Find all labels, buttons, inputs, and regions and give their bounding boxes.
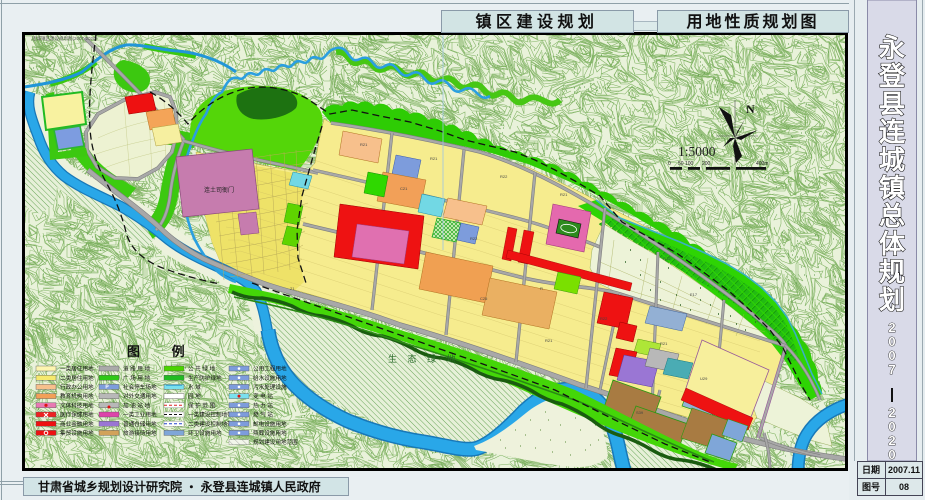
svg-text:体: 体 xyxy=(879,229,906,259)
svg-text:热 力 站: 热 力 站 xyxy=(253,401,273,409)
svg-text:0: 0 xyxy=(888,348,895,363)
svg-text:旅游接待用地: 旅游接待用地 xyxy=(123,429,157,437)
svg-text:县: 县 xyxy=(879,89,905,119)
svg-text:0: 0 xyxy=(888,419,895,434)
svg-text:道 路 用 地: 道 路 用 地 xyxy=(123,365,150,373)
svg-text:R22: R22 xyxy=(600,316,608,321)
svg-text:图号: 图号 xyxy=(862,482,880,492)
svg-text:R21: R21 xyxy=(430,156,438,161)
svg-text:变 电 站: 变 电 站 xyxy=(253,392,273,400)
svg-text:对外交通用地: 对外交通用地 xyxy=(123,392,157,400)
svg-text:社会停车场地: 社会停车场地 xyxy=(123,383,157,391)
svg-text:镇区建设规划: 镇区建设规划 xyxy=(475,12,598,31)
svg-text:R21: R21 xyxy=(660,341,668,346)
svg-text:0: 0 xyxy=(888,447,895,462)
svg-text:镇: 镇 xyxy=(879,173,905,203)
svg-text:0: 0 xyxy=(668,161,671,167)
svg-text:图 例: 图 例 xyxy=(127,344,199,359)
svg-text:2: 2 xyxy=(888,405,895,420)
svg-text:日期: 日期 xyxy=(862,464,880,475)
svg-text:2: 2 xyxy=(888,433,895,448)
svg-text:行政办公用地: 行政办公用地 xyxy=(60,383,94,391)
svg-text:总: 总 xyxy=(879,201,905,231)
svg-text:教育机构用地: 教育机构用地 xyxy=(60,392,94,400)
svg-text:1:5000: 1:5000 xyxy=(678,144,716,159)
svg-text:400m: 400m xyxy=(756,161,769,167)
svg-text:R21: R21 xyxy=(560,192,568,197)
svg-text:C25: C25 xyxy=(480,296,488,301)
svg-text:2: 2 xyxy=(888,320,895,335)
svg-text:连: 连 xyxy=(879,117,906,147)
svg-text:规划建设用地范围: 规划建设用地范围 xyxy=(253,438,298,446)
svg-text:二类建设控制地带: 二类建设控制地带 xyxy=(188,420,233,428)
svg-text:环卫设施用地: 环卫设施用地 xyxy=(188,429,222,437)
svg-text:殡葬设施用地: 殡葬设施用地 xyxy=(253,429,287,437)
svg-text:C21: C21 xyxy=(400,186,408,191)
svg-text:加 油 站 地: 加 油 站 地 xyxy=(123,401,150,409)
svg-text:污水处理设施: 污水处理设施 xyxy=(253,383,287,391)
svg-text:甘肃省城乡规划设计研究院 ・ 永登县连城镇人民政府: 甘肃省城乡规划设计研究院 ・ 永登县连城镇人民政府 xyxy=(38,479,321,494)
svg-text:商业金融用地: 商业金融用地 xyxy=(60,420,94,428)
svg-text:园 地: 园 地 xyxy=(188,392,201,400)
svg-text:燃 气 站: 燃 气 站 xyxy=(253,411,273,419)
svg-text:城: 城 xyxy=(879,145,905,175)
svg-text:生产防护绿地: 生产防护绿地 xyxy=(188,374,222,382)
svg-text:N: N xyxy=(746,102,755,116)
svg-text:登: 登 xyxy=(878,61,906,91)
svg-text:公用工程用地: 公用工程用地 xyxy=(253,365,287,373)
svg-text:50 100: 50 100 xyxy=(678,161,694,167)
svg-text:2007.11: 2007.11 xyxy=(888,465,920,475)
svg-text:普通仓储用地: 普通仓储用地 xyxy=(123,420,157,428)
svg-text:E17: E17 xyxy=(690,292,698,297)
svg-text:二类居住用地: 二类居住用地 xyxy=(60,374,94,382)
svg-text:水 域: 水 域 xyxy=(188,383,201,391)
svg-text:文体科技用地: 文体科技用地 xyxy=(60,401,94,409)
svg-text:邮电设施用地: 邮电设施用地 xyxy=(253,420,287,428)
svg-text:200: 200 xyxy=(702,161,711,167)
svg-text:集贸设施用地: 集贸设施用地 xyxy=(60,429,94,437)
svg-text:U29: U29 xyxy=(700,376,708,381)
svg-text:R22: R22 xyxy=(500,174,508,179)
svg-text:连城镇区建设规划图(2007-2020): 连城镇区建设规划图(2007-2020) xyxy=(32,35,98,42)
svg-text:一类工业用地: 一类工业用地 xyxy=(123,411,157,419)
svg-text:R21: R21 xyxy=(545,338,553,343)
svg-text:R21: R21 xyxy=(360,142,368,147)
svg-text:医疗保健用地: 医疗保健用地 xyxy=(60,411,94,419)
svg-text:7: 7 xyxy=(888,362,895,377)
svg-text:0: 0 xyxy=(888,334,895,349)
svg-text:G12: G12 xyxy=(663,256,671,261)
svg-text:公 共 绿 地: 公 共 绿 地 xyxy=(188,365,215,373)
svg-text:生 态 绿 地: 生 态 绿 地 xyxy=(388,353,460,364)
svg-text:连土司衙门: 连土司衙门 xyxy=(204,186,234,194)
svg-text:一类居住用地: 一类居住用地 xyxy=(60,365,94,373)
svg-text:S39: S39 xyxy=(636,410,644,415)
svg-text:08: 08 xyxy=(899,482,909,492)
svg-text:划: 划 xyxy=(879,285,905,315)
svg-text:给水设施用地: 给水设施用地 xyxy=(253,374,287,382)
svg-text:规: 规 xyxy=(879,257,905,287)
svg-text:R22: R22 xyxy=(470,236,478,241)
svg-text:永: 永 xyxy=(879,33,905,63)
svg-text:一类建设控制地带: 一类建设控制地带 xyxy=(188,411,233,419)
svg-text:广 场 用 地: 广 场 用 地 xyxy=(123,374,150,382)
svg-text:保 护 范 围: 保 护 范 围 xyxy=(188,401,215,409)
svg-text:用地性质规划图: 用地性质规划图 xyxy=(686,12,819,31)
